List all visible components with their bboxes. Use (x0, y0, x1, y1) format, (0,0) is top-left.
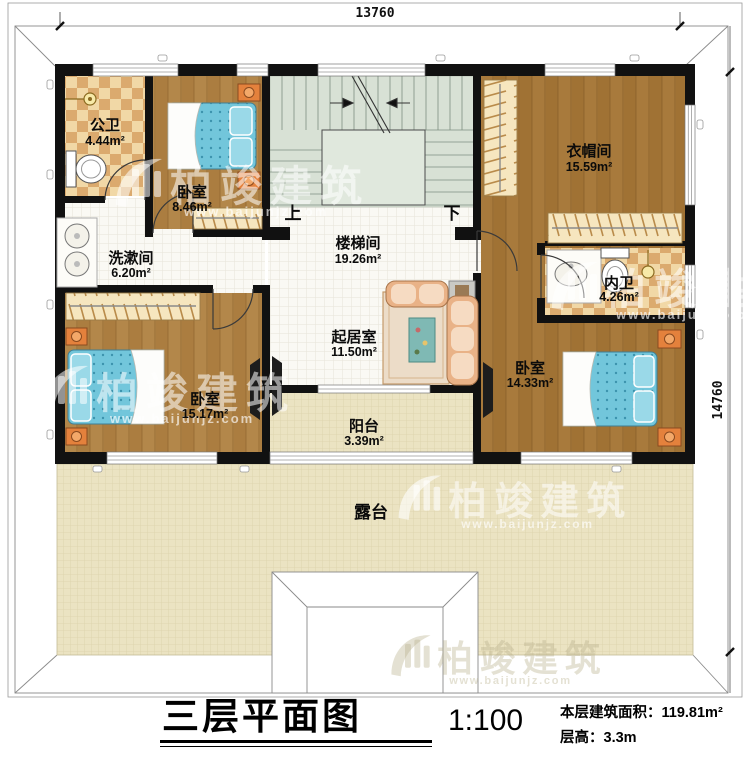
svg-text:3.39m²: 3.39m² (344, 434, 384, 448)
wardrobe-closet-left (484, 80, 517, 196)
drawing-title: 三层平面图 (162, 698, 362, 735)
bed-846 (168, 103, 256, 169)
svg-text:4.44m²: 4.44m² (85, 134, 125, 148)
tv-bedroom-1433 (483, 362, 493, 418)
floor-height-label: 层高： (560, 730, 604, 746)
washroom-sinks (57, 218, 97, 287)
floor-area-value: 119.81m² (662, 705, 723, 721)
svg-text:6.20m²: 6.20m² (111, 266, 151, 280)
room-label-bedroom-846: 卧室 (177, 183, 207, 201)
room-label-closet: 衣帽间 (566, 142, 611, 160)
svg-text:8.46m²: 8.46m² (172, 200, 212, 214)
svg-text:www.baijunjz.com: www.baijunjz.com (448, 675, 572, 687)
svg-text:柏竣建筑: 柏竣建筑 (437, 639, 607, 679)
stair-down-label: 下 (444, 204, 461, 223)
floor-height-value: 3.3m (604, 730, 637, 746)
svg-text:www.baijunjz.com: www.baijunjz.com (460, 517, 594, 531)
balcony-railing (270, 452, 473, 464)
pillow (230, 107, 252, 135)
wardrobe-bedroom-1517 (66, 293, 200, 320)
title-block: 三层平面图 1:100 本层建筑面积：119.81m² 层高：3.3m (0, 698, 750, 767)
drawing-info: 本层建筑面积：119.81m² 层高：3.3m (560, 701, 723, 750)
wardrobe-closet-bottom (548, 213, 682, 243)
pillow (634, 391, 654, 422)
svg-text:11.50m²: 11.50m² (331, 345, 377, 359)
pillow (634, 356, 654, 387)
room-label-bedroom-1517: 卧室 (190, 390, 220, 408)
floor-plan-drawing: 柏竣建筑 www.baijunjz.com 柏竣建筑 www.baijunjz.… (0, 0, 750, 700)
living-room-sofa-set (383, 281, 478, 385)
room-label-bedroom-1433: 卧室 (515, 359, 545, 377)
svg-text:14.33m²: 14.33m² (507, 376, 554, 390)
room-label-balcony: 阳台 (349, 417, 379, 435)
title-underline (160, 740, 432, 743)
svg-text:14760: 14760 (711, 380, 726, 419)
room-label-stair-hall: 楼梯间 (335, 234, 380, 252)
room-label-terrace: 露台 (354, 502, 388, 522)
svg-text:15.17m²: 15.17m² (182, 407, 229, 421)
drawing-scale: 1:100 (448, 704, 523, 738)
stair-up-label: 上 (285, 204, 302, 223)
svg-text:4.26m²: 4.26m² (599, 290, 639, 304)
pillow (230, 138, 252, 166)
svg-text:19.26m²: 19.26m² (335, 252, 382, 266)
svg-text:13760: 13760 (355, 6, 394, 21)
bed-1433 (563, 352, 657, 426)
coffee-table (409, 318, 435, 362)
title-underline-thin (160, 746, 432, 747)
floor-area-label: 本层建筑面积： (560, 705, 662, 721)
room-label-washroom: 洗漱间 (108, 249, 153, 267)
room-label-living: 起居室 (330, 328, 376, 346)
svg-text:15.59m²: 15.59m² (566, 160, 613, 174)
room-label-public-bath: 公卫 (90, 117, 120, 134)
floor-plan-page: 柏竣建筑 www.baijunjz.com 柏竣建筑 www.baijunjz.… (0, 0, 750, 767)
